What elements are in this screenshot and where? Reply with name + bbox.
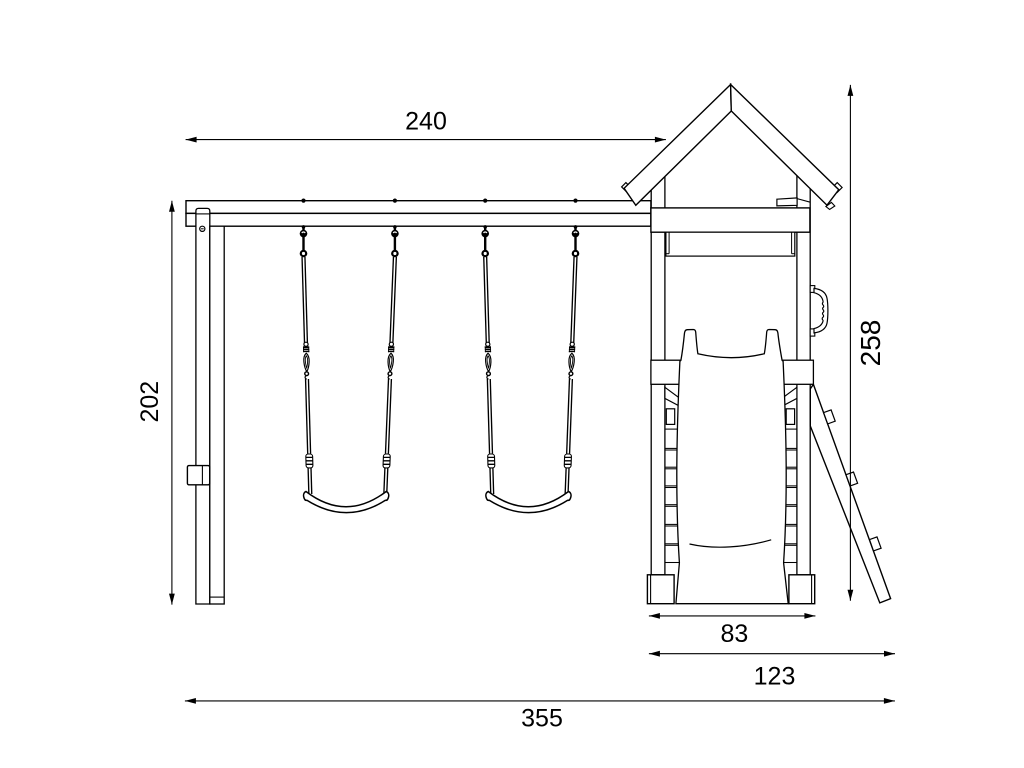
svg-text:240: 240	[405, 107, 447, 135]
svg-text:258: 258	[855, 320, 886, 367]
svg-text:123: 123	[754, 662, 796, 690]
svg-text:355: 355	[521, 704, 563, 732]
svg-text:83: 83	[720, 620, 748, 648]
svg-text:202: 202	[136, 381, 164, 423]
